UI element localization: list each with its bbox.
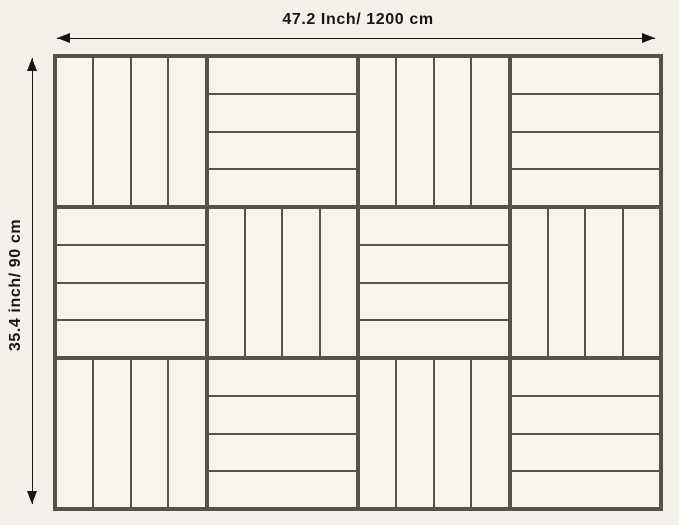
deck-tile-r2c4 [510,207,662,358]
tile-slat [360,319,508,356]
horizontal-dimension-label: 47.2 Inch/ 1200 cm [53,11,663,29]
tile-slat [512,395,660,432]
tile-slat [433,360,470,507]
tile-slat [360,209,508,244]
tile-slat [360,58,395,205]
deck-tile-r2c2 [207,207,359,358]
deck-tile-r3c4 [510,358,662,509]
tile-slat [57,282,205,319]
tile-slat [209,470,357,507]
deck-tile-r1c2 [207,56,359,207]
deck-tile-r2c3 [358,207,510,358]
horizontal-dimension-arrow [57,38,655,39]
tile-slat [395,58,432,205]
tile-slat [92,360,129,507]
tile-slat [167,58,204,205]
tile-slat [360,282,508,319]
tile-slat [512,168,660,205]
tile-slat [360,244,508,281]
tile-slat [470,58,507,205]
tile-slat [512,131,660,168]
tile-slat [547,209,584,356]
tile-slat [57,58,92,205]
tile-slat [130,58,167,205]
tile-slat [209,93,357,130]
tile-slat [622,209,659,356]
tile-slat [209,58,357,93]
deck-tile-grid [53,54,663,511]
tile-slat [512,58,660,93]
tile-slat [433,58,470,205]
tile-slat [512,470,660,507]
tile-slat [92,58,129,205]
tile-slat [512,433,660,470]
tile-slat [512,360,660,395]
deck-tile-r1c1 [55,56,207,207]
tile-slat [360,360,395,507]
tile-slat [281,209,318,356]
tile-slat [209,168,357,205]
vertical-dimension-arrow [32,58,33,504]
tile-slat [470,360,507,507]
tile-slat [512,93,660,130]
tile-slat [512,209,547,356]
tile-slat [130,360,167,507]
tile-slat [319,209,356,356]
deck-tile-r1c3 [358,56,510,207]
tile-slat [395,360,432,507]
deck-tile-r3c1 [55,358,207,509]
deck-tile-r3c2 [207,358,359,509]
tile-slat [57,244,205,281]
vertical-dimension-label: 35.4 inch/ 90 cm [7,185,27,385]
tile-slat [57,319,205,356]
tile-slat [209,395,357,432]
tile-slat [209,360,357,395]
deck-tile-r2c1 [55,207,207,358]
tile-slat [209,433,357,470]
tile-slat [244,209,281,356]
deck-tile-r1c4 [510,56,662,207]
deck-tile-r3c3 [358,358,510,509]
tile-slat [209,131,357,168]
tile-slat [209,209,244,356]
tile-slat [584,209,621,356]
tile-slat [167,360,204,507]
tile-slat [57,209,205,244]
tile-slat [57,360,92,507]
product-dimension-diagram: 47.2 Inch/ 1200 cm 35.4 inch/ 90 cm [0,0,679,525]
